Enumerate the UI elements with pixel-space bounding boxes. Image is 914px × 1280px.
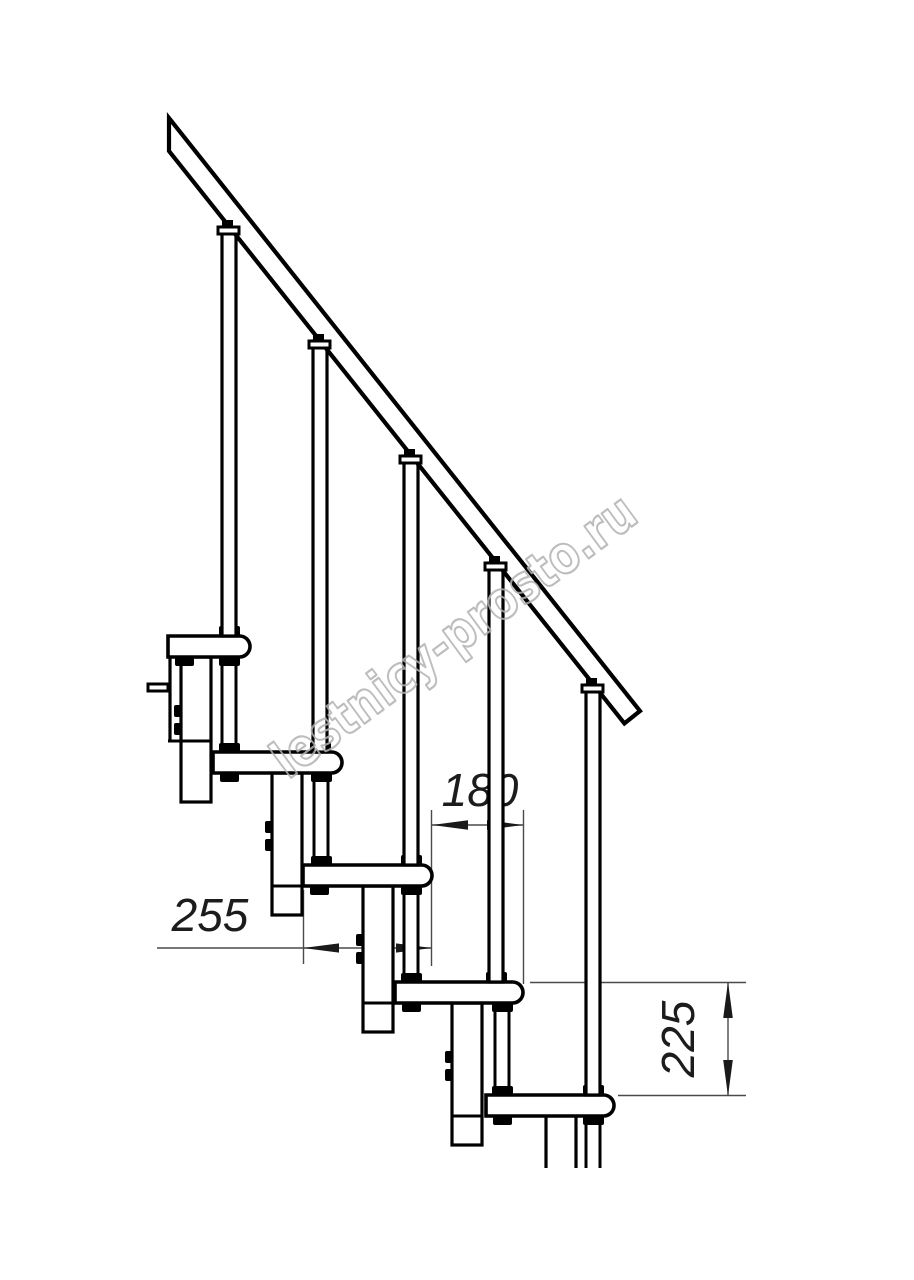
bolt-nub [220, 773, 239, 782]
staircase-drawing-page: 180 255 225 lestnicy-prosto [0, 0, 914, 1280]
baluster-cap [582, 685, 603, 692]
dimension-label-going: 180 [442, 764, 519, 816]
tread-1 [168, 636, 250, 657]
support-column-3 [363, 886, 393, 1032]
support-column-1 [181, 657, 211, 802]
support-column-2 [272, 773, 302, 915]
dimension-label-tread-depth: 255 [171, 889, 249, 941]
support-column-4 [452, 1003, 482, 1145]
bolt-nub [493, 1116, 512, 1125]
connector-post-4 [495, 1003, 509, 1095]
bolt-nub [402, 1003, 421, 1012]
dimension-label-riser-height: 225 [652, 1000, 704, 1078]
bolt-nub [356, 952, 364, 964]
connector-post-1 [222, 657, 236, 752]
staircase-technical-drawing: 180 255 225 lestnicy-prosto [0, 0, 914, 1280]
tread-3 [303, 865, 432, 886]
baluster-1 [222, 227, 236, 636]
baluster-2 [313, 341, 327, 752]
bolt-nub [265, 839, 273, 851]
arrowhead-down-icon [723, 1060, 733, 1096]
tread-5 [486, 1095, 614, 1116]
tread-4 [395, 982, 523, 1003]
connector-post-2 [314, 773, 328, 865]
bolt-nub [310, 886, 329, 895]
bolt-nub [174, 723, 182, 735]
connector-post-3 [404, 886, 418, 982]
stair-module-5 [486, 685, 614, 1168]
arrowhead-left-icon [432, 820, 468, 830]
bolt-nub [175, 657, 194, 666]
bolt-nub [174, 705, 182, 717]
bolt-nub [265, 821, 273, 833]
baluster-cap [400, 456, 421, 463]
baluster-cap [309, 341, 330, 348]
bolt-nub [356, 934, 364, 946]
arrowhead-left-icon [303, 943, 339, 952]
bolt-nub [445, 1051, 453, 1063]
stair-module-1 [168, 227, 250, 802]
baluster-cap [218, 227, 239, 234]
cut-connector-tab [148, 684, 168, 691]
baluster-5 [586, 685, 600, 1095]
dimension-riser-height-225: 225 [530, 982, 746, 1096]
bolt-nub [445, 1069, 453, 1081]
arrowhead-up-icon [723, 982, 733, 1018]
dimension-going-180: 180 [432, 764, 524, 984]
